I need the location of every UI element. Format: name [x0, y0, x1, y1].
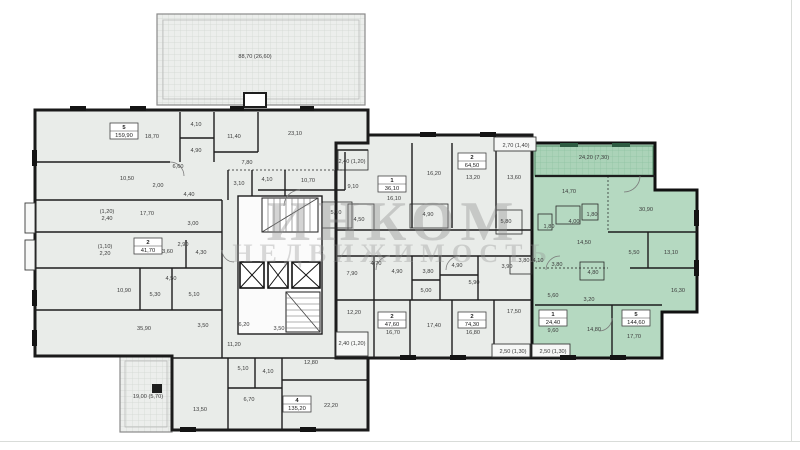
room-area-label: 16,20 [427, 171, 441, 177]
room-area-label: 22,20 [324, 403, 338, 409]
room-area-label: 4,40 [184, 192, 195, 198]
watermark: ИНКОМ НЕДВИЖИМОСТЬ [232, 191, 553, 268]
apartment-number: 2 [390, 314, 393, 320]
room-area-label: 2,40 [102, 216, 113, 222]
room-area-label: 2,90 [178, 242, 189, 248]
apartment-area: 47,60 [385, 322, 400, 328]
room-area-label: 3,50 [274, 326, 285, 332]
room-area-label: 12,20 [347, 310, 361, 316]
room-area-label: 23,10 [288, 131, 302, 137]
room-area-label: 2,20 [100, 251, 111, 257]
room-area-label: 14,80 [587, 327, 601, 333]
room-area-label: (1,20) [100, 209, 115, 215]
room-area-label: 17,50 [507, 309, 521, 315]
room-area-label: 4,90 [423, 212, 434, 218]
room-area-label: 4,90 [191, 148, 202, 154]
room-area-label: 88,70 (26,60) [238, 54, 271, 60]
room-area-label: 10,50 [120, 176, 134, 182]
room-area-label: 18,70 [145, 134, 159, 140]
room-area-label: 9,60 [548, 328, 559, 334]
room-area-label: 24,20 (7,30) [579, 155, 609, 161]
room-area-label: 4,10 [533, 258, 544, 264]
room-area-label: (1,10) [98, 244, 113, 250]
apartment-label[interactable]: 247,60 [378, 312, 406, 328]
room-area-label: 4,90 [392, 269, 403, 275]
room-area-label: 6,60 [173, 164, 184, 170]
room-area-label: 13,50 [193, 407, 207, 413]
apartment-number: 2 [470, 155, 473, 161]
room-area-label: 5,30 [150, 292, 161, 298]
room-area-label: 14,70 [562, 189, 576, 195]
room-area-label: 4,90 [452, 263, 463, 269]
terrace-selected [535, 146, 653, 176]
room-area-label: 16,80 [466, 330, 480, 336]
room-area-label: 4,50 [354, 217, 365, 223]
room-area-label: 2,40 (1,20) [338, 341, 365, 347]
room-area-label: 4,10 [191, 122, 202, 128]
room-area-label: 12,80 [304, 360, 318, 366]
room-area-label: 5,10 [189, 292, 200, 298]
room-area-label: 3,20 [584, 297, 595, 303]
room-area-label: 2,70 (1,40) [502, 143, 529, 149]
room-area-label: 4,00 [569, 219, 580, 225]
apartment-area: 24,40 [546, 320, 561, 326]
apartment-area: 159,90 [115, 133, 133, 139]
apartment-label[interactable]: 264,50 [458, 153, 486, 169]
room-area-label: 3,80 [519, 258, 530, 264]
room-area-label: 17,70 [627, 334, 641, 340]
room-area-label: 4,10 [262, 177, 273, 183]
room-area-label: 3,50 [198, 323, 209, 329]
apartment-label[interactable]: 4135,20 [283, 396, 311, 412]
floor-plan-page: ИНКОМ НЕДВИЖИМОСТЬ 88,70 (26,60)18,704,1… [0, 0, 800, 450]
staircase-lower [286, 292, 320, 332]
apartment-area: 135,20 [288, 406, 306, 412]
room-area-label: 2,50 (1,30) [499, 349, 526, 355]
room-area-label: 13,20 [466, 175, 480, 181]
apartment-number: 2 [146, 240, 149, 246]
room-area-label: 3,00 [188, 221, 199, 227]
apartment-area: 64,50 [465, 163, 480, 169]
apartment-label-selected[interactable]: 5144,60 [622, 310, 650, 326]
room-area-label: 7,80 [242, 160, 253, 166]
room-area-label: 5,90 [469, 280, 480, 286]
room-area-label: 6,70 [244, 397, 255, 403]
room-area-label: 30,90 [639, 207, 653, 213]
room-area-label: 1,80 [587, 212, 598, 218]
floor-plan: ИНКОМ НЕДВИЖИМОСТЬ 88,70 (26,60)18,704,1… [0, 0, 800, 450]
apartment-label[interactable]: 274,30 [458, 312, 486, 328]
room-area-label: 5,60 [548, 293, 559, 299]
room-area-label: 35,90 [137, 326, 151, 332]
room-area-label: 14,50 [577, 240, 591, 246]
room-area-label: 3,90 [502, 264, 513, 270]
room-area-label: 5,80 [501, 219, 512, 225]
room-area-label: 9,10 [348, 184, 359, 190]
room-area-label: 4,70 [371, 261, 382, 267]
apartment-number: 2 [470, 314, 473, 320]
room-area-label: 2,40 (1,20) [338, 159, 365, 165]
room-area-label: 13,60 [507, 175, 521, 181]
room-area-label: 5,10 [331, 210, 342, 216]
room-area-label: 4,10 [263, 369, 274, 375]
room-area-label: 10,90 [117, 288, 131, 294]
room-area-label: 16,70 [386, 330, 400, 336]
room-area-label: 5,10 [238, 366, 249, 372]
room-area-label: 11,40 [227, 134, 241, 140]
room-area-label: 1,80 [544, 224, 555, 230]
room-area-label: 2,50 (1,30) [539, 349, 566, 355]
room-area-label: 4,30 [196, 250, 207, 256]
room-area-label: 17,70 [140, 211, 154, 217]
room-area-label: 3,10 [234, 181, 245, 187]
apartment-label[interactable]: 136,10 [378, 176, 406, 192]
apartment-area: 144,60 [627, 320, 645, 326]
room-area-label: 19,00 (5,70) [133, 394, 163, 400]
room-area-label: 16,10 [387, 196, 401, 202]
room-area-label: 11,20 [227, 342, 241, 348]
apartment-label[interactable]: 5159,90 [110, 123, 138, 139]
terrace-top-left [157, 14, 365, 107]
apartment-label[interactable]: 124,40 [539, 310, 567, 326]
room-area-label: 17,40 [427, 323, 441, 329]
room-area-label: 4,50 [166, 276, 177, 282]
room-area-label: 5,50 [629, 250, 640, 256]
room-area-label: 6,20 [239, 322, 250, 328]
room-area-label: 7,90 [347, 271, 358, 277]
room-area-label: 16,30 [671, 288, 685, 294]
apartment-label[interactable]: 241,70 [134, 238, 162, 254]
room-area-label: 10,70 [301, 178, 315, 184]
apartment-area: 74,30 [465, 322, 480, 328]
room-area-label: 13,10 [664, 250, 678, 256]
apartment-area: 36,10 [385, 186, 400, 192]
room-area-label: 3,80 [552, 262, 563, 268]
room-area-label: 2,00 [153, 183, 164, 189]
room-area-label: 4,80 [588, 270, 599, 276]
apartment-area: 41,70 [141, 248, 156, 254]
room-area-label: 5,00 [421, 288, 432, 294]
room-area-label: 3,80 [423, 269, 434, 275]
